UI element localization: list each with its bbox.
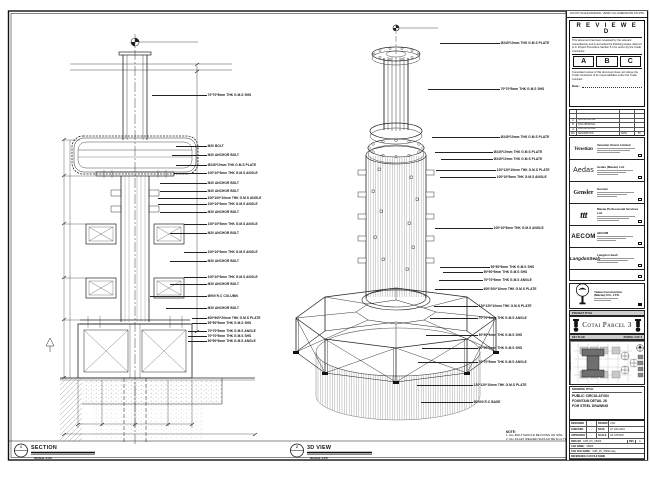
leader-line xyxy=(428,89,500,90)
ornament-icon xyxy=(634,319,642,332)
aedas-logo: Aedas xyxy=(570,167,597,174)
leader-line xyxy=(441,159,493,160)
cad-linework xyxy=(0,0,650,488)
callout: Ø345*10mm THK G.M.S PLATE xyxy=(441,157,542,161)
callout: 70*70*5mm THK G.M.S ANGLE xyxy=(188,329,256,333)
callout: 600*200*10mm THK G.M.S PLATE xyxy=(435,287,537,291)
consultant-row: Gensler Gensler xyxy=(570,182,644,204)
leader-line xyxy=(184,277,207,278)
callout: Ø345*10mm THK G.M.S PLATE xyxy=(432,135,549,139)
callout: 50*50*5mm THK G.M.S ANGLE xyxy=(188,339,256,343)
callout: 50*50*5mm THK G.M.S SHS xyxy=(443,270,527,274)
leader-line xyxy=(440,43,500,44)
key-plan-parcel-rotated: PARCEL 3 OF 3 xyxy=(570,354,572,370)
status-checkbox xyxy=(638,303,642,307)
callout: Ø2900 R.C BASE xyxy=(421,400,500,404)
leader-line xyxy=(422,348,478,349)
leader-line xyxy=(421,402,473,403)
leader-line xyxy=(432,137,500,138)
leader-line xyxy=(439,280,483,281)
leader-line xyxy=(435,228,493,229)
status-checkbox xyxy=(638,275,642,279)
callout: 70*70*5mm THK G.M.S SHS xyxy=(188,334,251,338)
date-line xyxy=(582,84,642,88)
stamp-date-row: Date : xyxy=(572,83,642,88)
gensler-logo: Gensler xyxy=(570,190,597,196)
consultant-row: Aedas Aedas (Macau) Ltd. xyxy=(570,160,644,182)
leader-line xyxy=(172,155,207,156)
callout: 120*120*10mm THK G.M.S PLATE xyxy=(434,304,532,308)
drawing-sheet: { "sheet": { "top_strip": "DO NOT SCALE … xyxy=(0,0,650,488)
leader-line xyxy=(160,191,207,192)
callout: 120*120*10mm THK G.M.S PLATE xyxy=(417,383,527,387)
address-lines xyxy=(597,216,639,220)
project-title-banner: Cotai Parcel 3 xyxy=(569,316,645,334)
callout: M20 ANCHOR BOLT xyxy=(166,306,239,310)
callout: M20 BOLT xyxy=(176,144,224,148)
section-view-bubble: 1 xyxy=(15,445,28,458)
langdon-seah-logo: LangdonSeah xyxy=(570,256,597,261)
callout: 50*50*5mm THK G.M.S SHS xyxy=(440,265,534,269)
status-checkbox xyxy=(638,198,642,202)
consultant-row: Venetian Venetian Orient Limited xyxy=(570,138,644,160)
drawing-title-box: DRAWING TITLE: PUBLIC CIRCULATION FOUNTA… xyxy=(569,386,645,420)
callout: 50*50*5mm THK G.M.S SHS xyxy=(426,333,522,337)
consultant-row: AECOM AECOM xyxy=(570,226,644,248)
leader-line xyxy=(440,177,496,178)
callout: 70*70*5mm THK G.M.S ANGLE xyxy=(439,278,532,282)
reviewed-body: This document has been reviewed by the r… xyxy=(572,38,642,56)
callout: 100*10*5mm THK G.M.S ANGLE xyxy=(184,250,258,254)
leader-line xyxy=(418,362,478,363)
leader-line xyxy=(440,267,490,268)
leader-line xyxy=(436,170,496,171)
callout: 70*70*5mm THK G.M.S ANGLE xyxy=(418,360,527,364)
consultant-row: ttt Macau Professional Services Ltd. xyxy=(570,204,644,226)
leader-line xyxy=(152,95,207,96)
ornament-icon xyxy=(572,319,580,332)
iso-view-scale: SCALE 1:25 xyxy=(310,456,328,460)
consultant-list: Venetian Venetian Orient Limited Aedas A… xyxy=(569,137,645,281)
revision-header-row: NO.DESCRIPTIONDATEBY xyxy=(570,131,644,135)
leader-line xyxy=(435,152,493,153)
key-plan: PARCEL 3 OF 3 xyxy=(569,340,645,385)
project-title: Cotai Parcel 3 xyxy=(582,321,632,329)
callout: 600*600*20mm THK G.M.S PLATE xyxy=(192,316,261,320)
leader-line xyxy=(170,284,207,285)
callout: 70*70*5mm THK G.M.S ANGLE xyxy=(430,316,527,320)
status-checkbox xyxy=(638,220,642,224)
ref-cad-row: REFERENCE CAD FILE NAME xyxy=(570,454,644,459)
callout: Ø345*10mm THK G.M.S PLATE xyxy=(176,163,256,167)
ttt-logo: ttt xyxy=(570,210,597,220)
status-checkbox xyxy=(638,264,642,268)
do-not-scale-strip: DO NOT SCALE DRAWING. VERIFY ALL DIMENSI… xyxy=(567,11,647,18)
callout: 70*70*5mm THK G.M.S SHS xyxy=(152,93,251,97)
leader-line xyxy=(430,318,478,319)
contractor-logo xyxy=(570,283,594,310)
leader-line xyxy=(417,385,473,386)
leader-line xyxy=(184,252,207,253)
status-checkbox xyxy=(638,154,642,158)
callout: 100*10*5mm THK G.M.S ANGLE xyxy=(184,275,258,279)
callout: 50*50*5mm THK G.M.S SHS xyxy=(192,321,251,325)
callout: M20 ANCHOR BOLT xyxy=(172,153,239,157)
venetian-logo: Venetian xyxy=(570,146,597,152)
callout: 100*10*5mm THK G.M.S ANGLE xyxy=(435,226,544,230)
leader-line xyxy=(170,233,207,234)
address-lines xyxy=(597,258,639,262)
iso-view-bubble: 2 xyxy=(291,445,304,458)
address-lines xyxy=(594,298,622,301)
callout: 120*120*10mm THK G.M.S PLATE xyxy=(436,168,550,172)
leader-line xyxy=(426,335,478,336)
leader-line xyxy=(188,336,207,337)
aecom-logo: AECOM xyxy=(570,233,597,240)
address-lines xyxy=(597,170,639,174)
leader-line xyxy=(176,165,207,166)
leader-line xyxy=(158,204,207,205)
reviewed-stamp: R E V I E W E D This document has been r… xyxy=(569,20,645,107)
status-option-c: C xyxy=(620,56,641,67)
leader-line xyxy=(160,212,207,213)
signature-table: DESIGNED-DRAWNCAD CHECKED-DATE07-JUN-201… xyxy=(569,420,645,460)
leader-line xyxy=(150,296,207,297)
empty-consultant-row xyxy=(570,270,644,280)
address-lines xyxy=(597,192,639,196)
callout: M20 ANCHOR BOLT xyxy=(160,181,239,185)
status-options: A B C xyxy=(572,55,642,69)
leader-line xyxy=(176,146,207,147)
leader-line xyxy=(434,306,478,307)
status-option-b: B xyxy=(596,56,617,67)
leader-line xyxy=(184,224,207,225)
callout: Ø900 R.C COLUMN xyxy=(150,294,238,298)
consultant-row: LangdonSeah Langdon Seah xyxy=(570,248,644,270)
callout: 70*70*5mm THK G.M.S SHS xyxy=(428,87,544,91)
callout: Ø345*10mm THK G.M.S PLATE xyxy=(440,41,549,45)
address-lines xyxy=(597,236,639,240)
callout: 100*10*5mm THK G.M.S ANGLE xyxy=(440,175,547,179)
reviewed-footer: Consultant review of this document does … xyxy=(572,69,642,82)
section-view-scale: SCALE 1:25 xyxy=(34,456,52,460)
leader-line xyxy=(188,341,207,342)
callout: Ø345*10mm THK G.M.S PLATE xyxy=(435,150,542,154)
callout: M20 ANCHOR BOLT xyxy=(170,231,239,235)
callout: M20 ANCHOR BOLT xyxy=(170,282,239,286)
callout: M20 ANCHOR BOLT xyxy=(160,189,239,193)
callout: M20 ANCHOR BOLT xyxy=(170,259,239,263)
leader-line xyxy=(170,261,207,262)
leader-line xyxy=(192,318,207,319)
title-block: DO NOT SCALE DRAWING. VERIFY ALL DIMENSI… xyxy=(566,11,647,460)
leader-line xyxy=(443,272,483,273)
leader-line xyxy=(166,308,207,309)
callout: M20 ANCHOR BOLT xyxy=(160,210,239,214)
iso-view-title: 3D VIEW xyxy=(307,445,331,451)
callout: 100*10*5mm THK G.M.S ANGLE xyxy=(174,171,258,175)
leader-line xyxy=(188,331,207,332)
status-checkbox xyxy=(638,242,642,246)
leader-line xyxy=(158,198,207,199)
leader-line xyxy=(174,173,207,174)
address-lines xyxy=(597,148,639,152)
callout: 100*10*5mm THK G.M.S ANGLE xyxy=(158,202,258,206)
revision-table: CFOR APPROVAL BFOR APPROVAL AFOR APPROVA… xyxy=(569,109,645,137)
contractor-box: Yadea Construction (Macau) CO., LTD. xyxy=(569,283,645,309)
leader-line xyxy=(192,323,207,324)
section-view-title: SECTION xyxy=(31,445,57,451)
callout: 100*100*10mm THK G.M.S ANGLE xyxy=(158,196,261,200)
leader-line xyxy=(435,289,483,290)
reviewed-title: R E V I E W E D xyxy=(572,22,642,38)
status-option-a: A xyxy=(573,56,594,67)
callout: 50*50*5mm THK G.M.S SHS xyxy=(422,346,522,350)
callout: 100*10*5mm THK G.M.S ANGLE xyxy=(184,222,258,226)
leader-line xyxy=(160,183,207,184)
status-checkbox xyxy=(638,176,642,180)
